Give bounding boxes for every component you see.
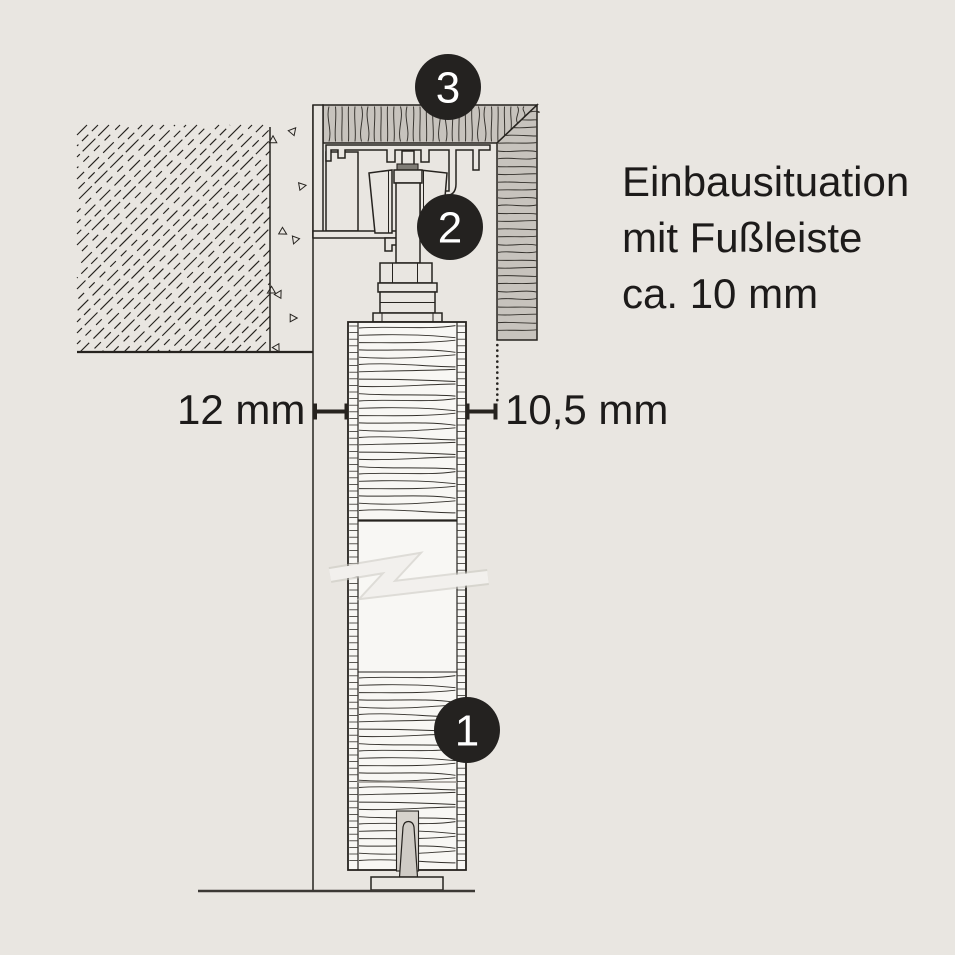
callout-number: 1 bbox=[455, 707, 479, 756]
door-panel bbox=[330, 322, 488, 890]
grain-line bbox=[498, 213, 536, 214]
wall-mount-plate bbox=[313, 105, 323, 237]
suspension-bolt-shaft bbox=[396, 183, 420, 263]
callout-1: 1 bbox=[434, 697, 500, 763]
grain-line bbox=[498, 143, 536, 144]
floor-guide-base bbox=[371, 877, 443, 890]
dimension-label-right: 10,5 mm bbox=[505, 386, 668, 433]
callout-2: 2 bbox=[417, 194, 483, 260]
grain-line bbox=[498, 307, 536, 308]
track-fascia-panel bbox=[326, 152, 358, 231]
title-line-3: ca. 10 mm bbox=[622, 270, 818, 317]
callout-3: 3 bbox=[415, 54, 481, 120]
grain-line bbox=[521, 120, 536, 121]
hex-nut bbox=[380, 263, 432, 283]
callout-number: 2 bbox=[438, 204, 462, 253]
title-line-2: mit Fußleiste bbox=[622, 214, 862, 261]
bolt-head-stem bbox=[402, 151, 414, 165]
installation-diagram: 12 mm 10,5 mm 3 2 1 Einbausituation mit … bbox=[0, 0, 955, 955]
title-line-1: Einbausituation bbox=[622, 158, 909, 205]
grain-line bbox=[498, 283, 536, 284]
hanger-plate bbox=[373, 313, 442, 322]
grain-line bbox=[498, 236, 536, 237]
grain-line bbox=[498, 260, 536, 261]
grain-line bbox=[498, 330, 536, 331]
grain-line bbox=[498, 167, 536, 168]
grain-line bbox=[498, 189, 536, 190]
callout-number: 3 bbox=[436, 64, 460, 113]
bolt-collar bbox=[394, 170, 422, 183]
washer-band bbox=[378, 283, 437, 292]
dimension-label-left: 12 mm bbox=[177, 386, 305, 433]
baseboard-strip bbox=[497, 105, 537, 340]
